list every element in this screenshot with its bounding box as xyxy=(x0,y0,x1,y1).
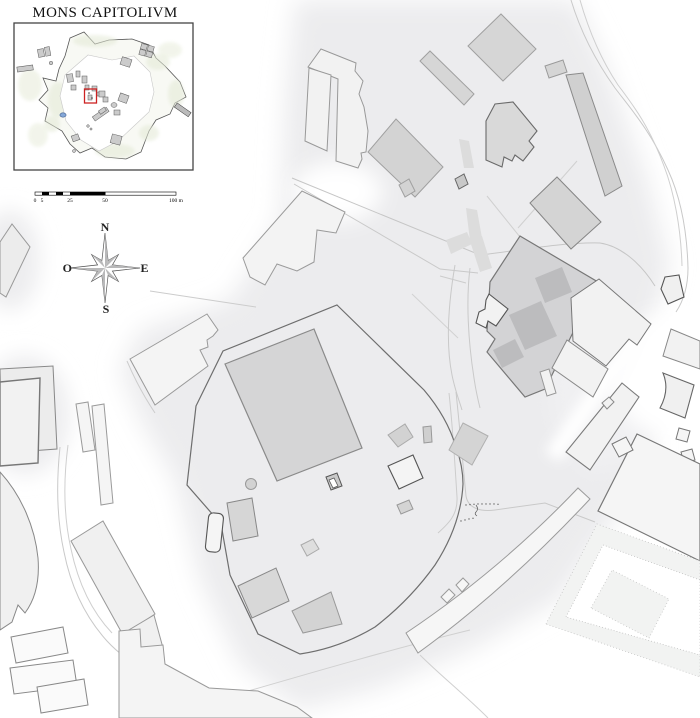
svg-text:S: S xyxy=(103,302,110,316)
svg-text:25: 25 xyxy=(67,198,73,204)
svg-text:100 m: 100 m xyxy=(169,198,184,204)
svg-text:N: N xyxy=(101,220,110,234)
svg-text:5: 5 xyxy=(41,198,44,204)
svg-text:50: 50 xyxy=(102,198,108,204)
svg-text:O: O xyxy=(63,261,72,275)
svg-text:MONS CAPITOLIVM: MONS CAPITOLIVM xyxy=(32,5,177,21)
svg-text:E: E xyxy=(141,261,149,275)
svg-text:0: 0 xyxy=(34,198,37,204)
